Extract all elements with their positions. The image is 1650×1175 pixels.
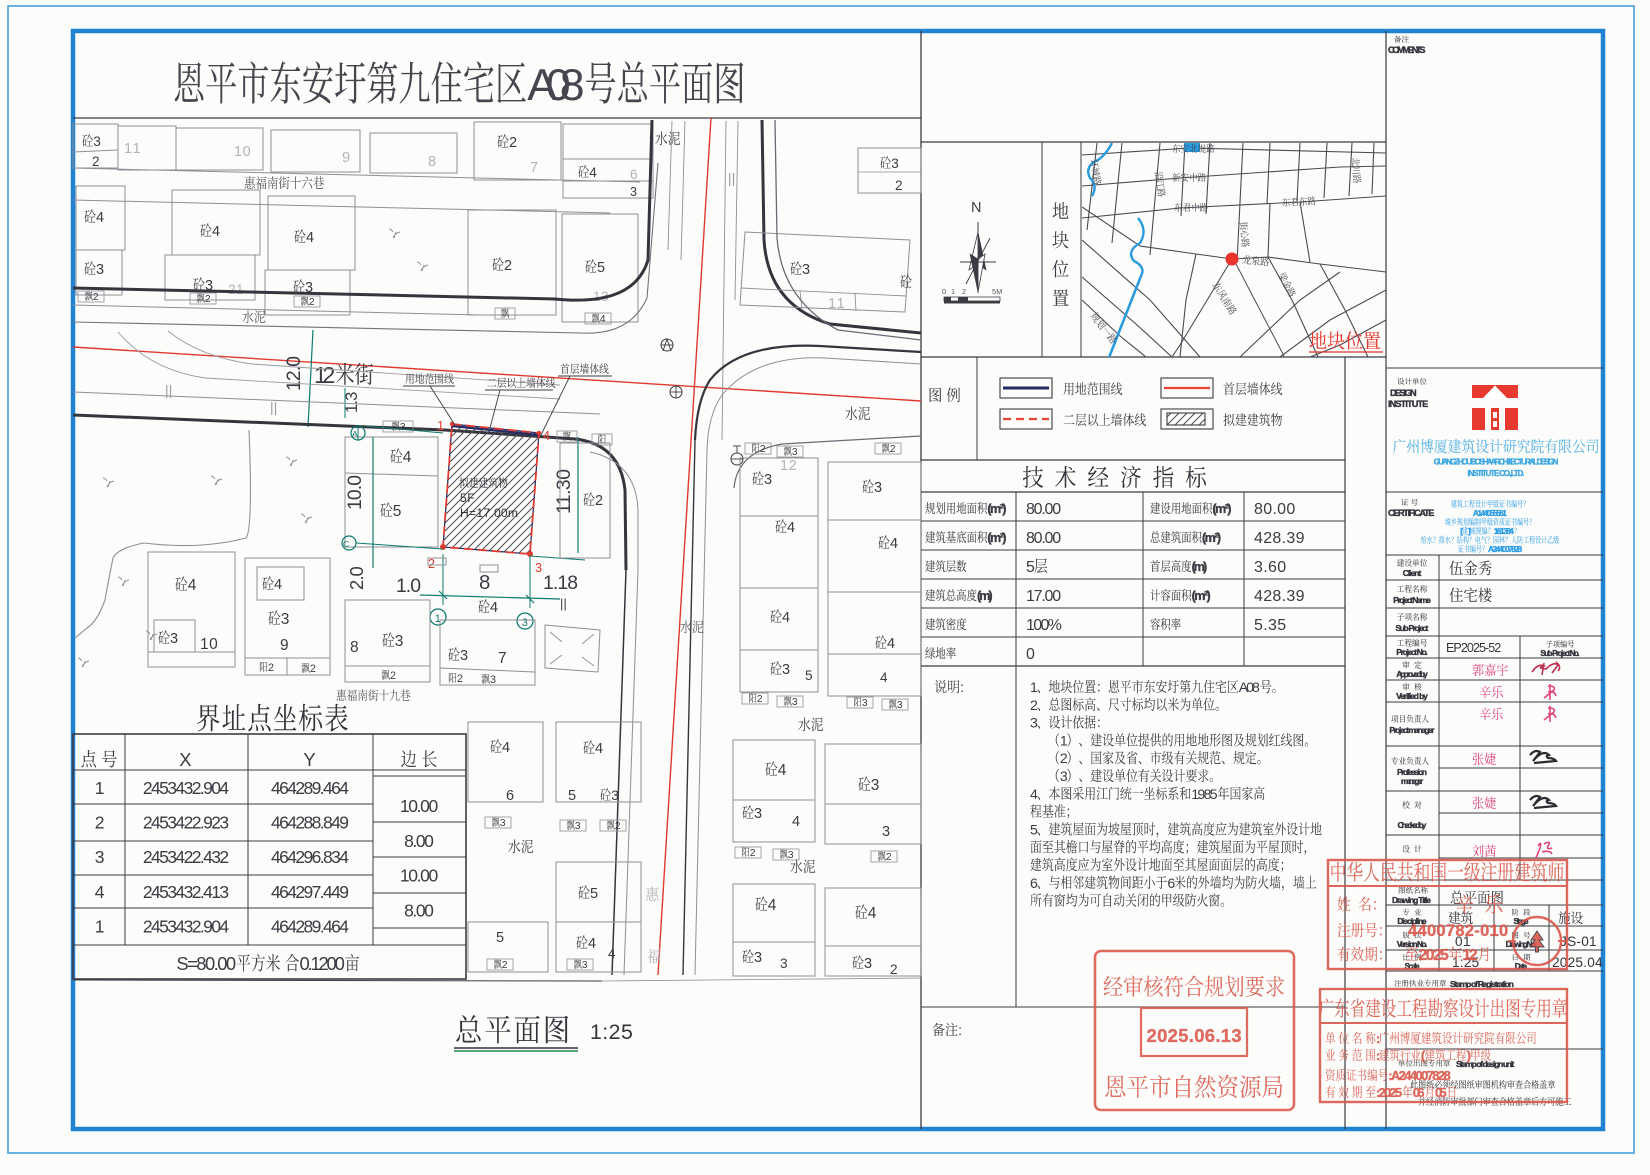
svg-text:Project manager: Project manager	[1389, 725, 1435, 735]
svg-text:2: 2	[890, 444, 896, 455]
svg-text:EP2025-52: EP2025-52	[1446, 641, 1501, 655]
svg-text:3: 3	[281, 611, 290, 628]
svg-text:(m²): (m²)	[987, 502, 1006, 516]
svg-text:0.1200: 0.1200	[300, 953, 345, 974]
svg-text:464288.849: 464288.849	[271, 813, 349, 833]
svg-text:2: 2	[757, 694, 763, 705]
svg-text:464289.464: 464289.464	[271, 778, 349, 798]
svg-text:3: 3	[792, 697, 798, 708]
svg-text:2: 2	[268, 662, 274, 674]
svg-text:8: 8	[350, 639, 359, 656]
svg-text:8.00: 8.00	[404, 900, 434, 920]
svg-text:428.39: 428.39	[1254, 530, 1305, 547]
svg-text:4: 4	[403, 449, 412, 466]
svg-text:2: 2	[92, 154, 100, 169]
svg-text:7: 7	[530, 160, 538, 176]
svg-text:3: 3	[882, 824, 890, 840]
svg-text:Client: Client	[1403, 568, 1422, 578]
svg-text:80.00: 80.00	[1026, 501, 1061, 518]
svg-text:INSTITUTE: INSTITUTE	[1388, 399, 1428, 409]
svg-text:(m): (m)	[1192, 560, 1208, 574]
svg-text:4: 4	[589, 165, 597, 180]
svg-text:3: 3	[1060, 768, 1068, 784]
svg-text:4: 4	[274, 577, 282, 593]
svg-text:2453422.923: 2453422.923	[143, 813, 229, 833]
svg-text:3: 3	[490, 674, 496, 686]
svg-text:2: 2	[895, 178, 903, 193]
svg-text:]: ]	[1468, 526, 1471, 536]
svg-text::: :	[958, 1022, 962, 1038]
svg-text:7: 7	[498, 650, 507, 667]
svg-text:2: 2	[595, 493, 603, 509]
svg-text:80.00: 80.00	[1254, 501, 1295, 518]
svg-text:10.00: 10.00	[400, 796, 439, 816]
svg-text:3: 3	[764, 472, 772, 488]
svg-text:1:25: 1:25	[590, 1020, 633, 1044]
svg-text:manager: manager	[1401, 776, 1424, 786]
svg-text:80.00: 80.00	[1026, 530, 1061, 547]
svg-text:1.3: 1.3	[343, 392, 361, 413]
svg-text:4: 4	[792, 814, 800, 830]
svg-text:3: 3	[582, 960, 588, 971]
svg-text:10: 10	[234, 144, 251, 160]
svg-text:161384: 161384	[1494, 526, 1514, 536]
svg-text:3: 3	[575, 821, 581, 832]
svg-text:Project No.: Project No.	[1396, 647, 1428, 657]
svg-text:2: 2	[615, 821, 621, 832]
svg-text:21: 21	[228, 282, 244, 297]
svg-text::2025: :2025	[1376, 1085, 1402, 1100]
svg-text:||: ||	[728, 171, 735, 186]
svg-text:5M: 5M	[992, 287, 1002, 296]
svg-text:06: 06	[1413, 1085, 1425, 1100]
svg-text:[: [	[1460, 526, 1463, 536]
svg-text:3: 3	[522, 617, 528, 629]
svg-text:(m²): (m²)	[1202, 531, 1221, 545]
svg-text:2: 2	[509, 135, 517, 151]
svg-text:4: 4	[778, 762, 787, 779]
svg-text:4: 4	[1030, 786, 1038, 802]
svg-text:1.0: 1.0	[396, 575, 421, 597]
svg-text:DESIGN: DESIGN	[1390, 388, 1417, 398]
svg-text:4: 4	[96, 210, 104, 226]
svg-text:464296.834: 464296.834	[271, 847, 349, 867]
svg-text:3: 3	[782, 662, 790, 678]
svg-text:3: 3	[95, 847, 105, 867]
svg-text:A08: A08	[527, 61, 584, 110]
svg-text:3: 3	[535, 561, 542, 575]
svg-text:11: 11	[828, 296, 845, 312]
svg-text:6: 6	[1030, 875, 1038, 891]
svg-text:12: 12	[1462, 947, 1477, 964]
svg-text:4: 4	[543, 429, 550, 443]
svg-text:1: 1	[1030, 679, 1038, 695]
svg-text:4: 4	[768, 897, 777, 914]
svg-text:12.0: 12.0	[283, 356, 305, 391]
svg-text:0: 0	[942, 287, 946, 296]
svg-text:4: 4	[868, 905, 877, 922]
svg-text:2025.04: 2025.04	[1552, 955, 1603, 970]
svg-text:3: 3	[395, 633, 404, 650]
svg-text::: :	[960, 679, 964, 695]
svg-text::: :	[1376, 1031, 1380, 1046]
svg-text:2453432.413: 2453432.413	[143, 882, 229, 902]
svg-text:2: 2	[390, 670, 396, 682]
svg-text:Stamp of Registration: Stamp of Registration	[1450, 979, 1514, 989]
svg-text:4: 4	[212, 224, 220, 240]
svg-text:S=80.00: S=80.00	[176, 953, 236, 974]
svg-text:2.0: 2.0	[346, 566, 367, 590]
svg-text:3: 3	[630, 185, 637, 199]
svg-text:||: ||	[560, 597, 567, 611]
svg-text:12: 12	[314, 362, 335, 388]
svg-text:Drawing Title: Drawing Title	[1392, 895, 1431, 905]
svg-text:3: 3	[802, 262, 810, 278]
svg-text:3: 3	[897, 700, 903, 711]
svg-text:2: 2	[205, 294, 211, 305]
svg-text:4: 4	[782, 610, 790, 626]
svg-text:3: 3	[788, 850, 794, 861]
svg-text:3: 3	[500, 818, 506, 829]
svg-text:5: 5	[590, 886, 598, 902]
svg-text:Project Name: Project Name	[1393, 595, 1431, 605]
svg-text:2: 2	[962, 287, 966, 296]
svg-text:6: 6	[506, 788, 514, 804]
svg-text:2: 2	[310, 663, 316, 675]
svg-text:2: 2	[1030, 697, 1038, 713]
svg-text:0: 0	[1026, 646, 1035, 663]
svg-text:11: 11	[124, 141, 141, 157]
svg-text:2: 2	[890, 962, 898, 977]
svg-text:2: 2	[457, 673, 463, 685]
svg-text:8: 8	[428, 154, 436, 170]
svg-text:3: 3	[780, 956, 788, 971]
svg-text:(m²): (m²)	[1212, 502, 1231, 516]
svg-text:): )	[1467, 1048, 1471, 1063]
svg-text:2: 2	[750, 848, 756, 859]
svg-text:3: 3	[864, 956, 872, 972]
svg-text:1985: 1985	[1191, 786, 1218, 802]
svg-text:3: 3	[792, 447, 798, 458]
svg-text:3: 3	[1030, 715, 1038, 731]
svg-text:3: 3	[754, 950, 762, 966]
svg-text:||: ||	[270, 400, 277, 415]
svg-text:N: N	[971, 200, 981, 216]
svg-text:3.60: 3.60	[1254, 559, 1286, 576]
svg-text:4: 4	[787, 520, 795, 536]
svg-text:100%: 100%	[1026, 617, 1062, 634]
svg-text:1: 1	[95, 916, 105, 936]
svg-text:10.0: 10.0	[344, 475, 366, 510]
svg-text:Y: Y	[303, 749, 315, 770]
svg-text:3: 3	[891, 156, 899, 171]
svg-text:4: 4	[880, 670, 888, 685]
svg-text:2: 2	[502, 960, 508, 971]
svg-text:10.00: 10.00	[400, 866, 439, 886]
svg-text:2: 2	[1060, 750, 1068, 766]
svg-text::A244007828: :A244007828	[1388, 1068, 1451, 1083]
svg-text:2: 2	[93, 292, 99, 303]
svg-text:2: 2	[886, 852, 892, 863]
svg-text:C: C	[343, 539, 349, 549]
svg-text:3: 3	[754, 806, 762, 822]
svg-text:Sub-Project No.: Sub-Project No.	[1540, 649, 1579, 658]
svg-text:2: 2	[760, 444, 766, 455]
svg-text:6: 6	[1167, 875, 1175, 891]
svg-text:3: 3	[611, 788, 619, 803]
svg-text:3: 3	[93, 134, 101, 149]
svg-text:17.00: 17.00	[1026, 588, 1061, 605]
svg-text:2453422.432: 2453422.432	[143, 847, 229, 867]
svg-text:8.00: 8.00	[404, 831, 434, 851]
svg-text:2025: 2025	[1419, 947, 1450, 964]
svg-text:05: 05	[1435, 1085, 1447, 1100]
svg-text:5: 5	[805, 668, 813, 683]
svg-text:X: X	[179, 749, 191, 770]
svg-text:5: 5	[1026, 559, 1035, 576]
svg-text:1: 1	[437, 419, 444, 433]
svg-text:3: 3	[460, 648, 468, 664]
svg-text:2: 2	[309, 297, 315, 308]
svg-text:H=17.00m: H=17.00m	[460, 506, 518, 520]
svg-text:Checked by: Checked by	[1398, 820, 1427, 830]
svg-text:464289.464: 464289.464	[271, 916, 349, 936]
svg-text:GUANGZHOU BOSHA ARCHITECTURAL: GUANGZHOU BOSHA ARCHITECTURAL DESIGN	[1434, 458, 1559, 467]
svg-text:(m²): (m²)	[987, 531, 1006, 545]
svg-text:4: 4	[490, 600, 498, 616]
svg-text:5: 5	[496, 930, 504, 946]
svg-text:2025.06.13: 2025.06.13	[1147, 1025, 1242, 1046]
svg-text:COMMENTS: COMMENTS	[1388, 45, 1426, 55]
svg-text:5: 5	[1030, 821, 1038, 837]
svg-text:5F: 5F	[460, 491, 475, 505]
svg-text:5.35: 5.35	[1254, 617, 1286, 634]
svg-text:9: 9	[280, 637, 289, 654]
svg-text:Sub-Project: Sub-Project	[1396, 623, 1429, 633]
svg-text:5: 5	[597, 260, 605, 276]
svg-text:4: 4	[502, 740, 510, 756]
svg-text:1: 1	[951, 287, 955, 296]
svg-text:9: 9	[342, 150, 350, 166]
svg-text:3: 3	[96, 262, 104, 278]
svg-text:4: 4	[95, 882, 105, 902]
svg-text:12: 12	[780, 458, 797, 474]
svg-text:8: 8	[479, 572, 490, 594]
svg-text:2: 2	[95, 813, 105, 833]
svg-text:CERTIFICATE: CERTIFICATE	[1388, 508, 1434, 518]
svg-text:4: 4	[890, 536, 898, 552]
svg-text:5: 5	[568, 788, 576, 804]
svg-text:4: 4	[588, 936, 596, 952]
svg-text:A144055561: A144055561	[1473, 508, 1507, 518]
svg-text:1: 1	[1060, 732, 1068, 748]
svg-text:6: 6	[630, 167, 638, 182]
svg-text:2: 2	[428, 557, 435, 571]
svg-text:Approved by: Approved by	[1396, 669, 1428, 679]
svg-text:428.39: 428.39	[1254, 588, 1305, 605]
svg-text:4: 4	[600, 314, 606, 325]
svg-text:3: 3	[170, 631, 178, 647]
svg-text:5: 5	[393, 503, 402, 520]
svg-text:3: 3	[874, 480, 882, 496]
svg-text:A: A	[352, 429, 358, 439]
svg-text:464297.449: 464297.449	[271, 882, 349, 902]
svg-text:3: 3	[400, 422, 406, 433]
svg-text:11.30: 11.30	[553, 469, 575, 514]
svg-text:3: 3	[871, 777, 880, 794]
svg-text:4: 4	[608, 946, 616, 961]
svg-text:2453432.904: 2453432.904	[143, 778, 229, 798]
svg-text:4: 4	[306, 230, 314, 246]
svg-text:(m²): (m²)	[1192, 589, 1211, 603]
svg-text:||: ||	[165, 383, 172, 398]
svg-text:4: 4	[595, 741, 603, 757]
svg-text:Verified by: Verified by	[1396, 691, 1428, 701]
svg-text:10: 10	[200, 636, 218, 653]
svg-text:4: 4	[887, 636, 895, 652]
svg-text:1: 1	[95, 778, 105, 798]
svg-text:2: 2	[504, 258, 512, 274]
svg-text:A244007828: A244007828	[1488, 544, 1522, 554]
svg-text:4400782-010: 4400782-010	[1408, 922, 1508, 940]
svg-text:INSTITUTE CO.,LTD.: INSTITUTE CO.,LTD.	[1468, 469, 1525, 478]
svg-text:1.18: 1.18	[543, 572, 578, 594]
svg-text:4: 4	[188, 577, 197, 594]
svg-text:(m): (m)	[977, 589, 993, 603]
svg-text:2453432.904: 2453432.904	[143, 916, 229, 936]
svg-text:3: 3	[862, 698, 868, 709]
svg-text:A08: A08	[1239, 679, 1260, 695]
